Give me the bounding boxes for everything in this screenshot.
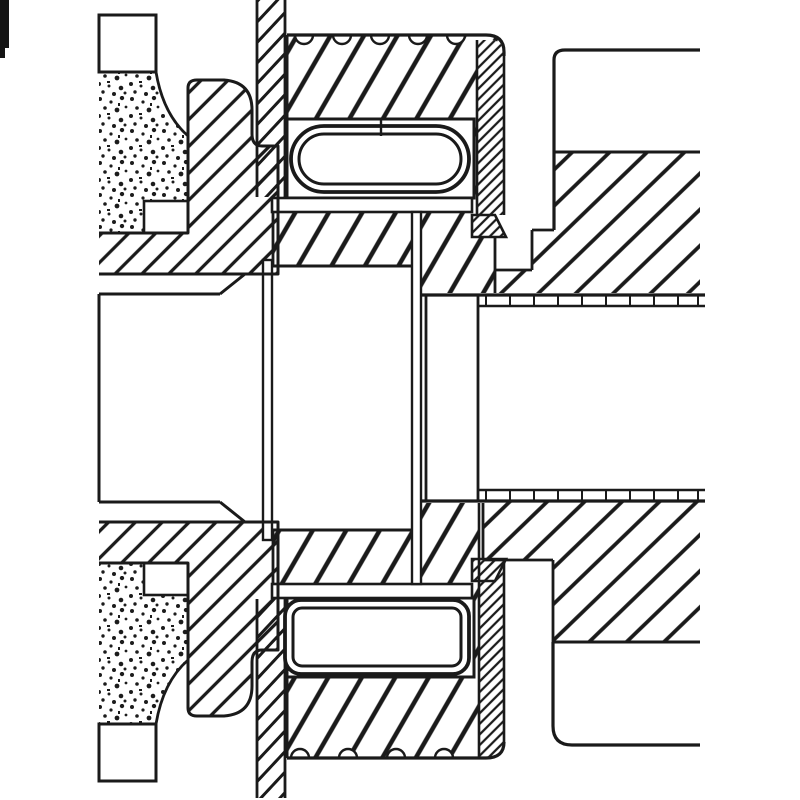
thread-ticks xyxy=(486,295,698,501)
right-body xyxy=(483,152,700,642)
sleeve-edge-right xyxy=(412,212,421,584)
collar-notch-bottom xyxy=(144,563,188,595)
scan-artifact-nub xyxy=(0,44,5,58)
drawing-page xyxy=(0,0,800,800)
washer-top xyxy=(272,198,472,212)
left-knurled-collar xyxy=(99,72,188,724)
sleeve-edge-left xyxy=(263,260,272,540)
bottom-roller xyxy=(285,600,469,674)
collar-top-block xyxy=(99,15,156,72)
scan-artifact xyxy=(0,0,9,48)
washer-bottom xyxy=(272,584,472,598)
top-roller xyxy=(291,119,469,192)
engineering-drawing xyxy=(0,0,800,800)
collar-bottom-block xyxy=(99,724,156,781)
collar-notch-top xyxy=(144,201,188,233)
